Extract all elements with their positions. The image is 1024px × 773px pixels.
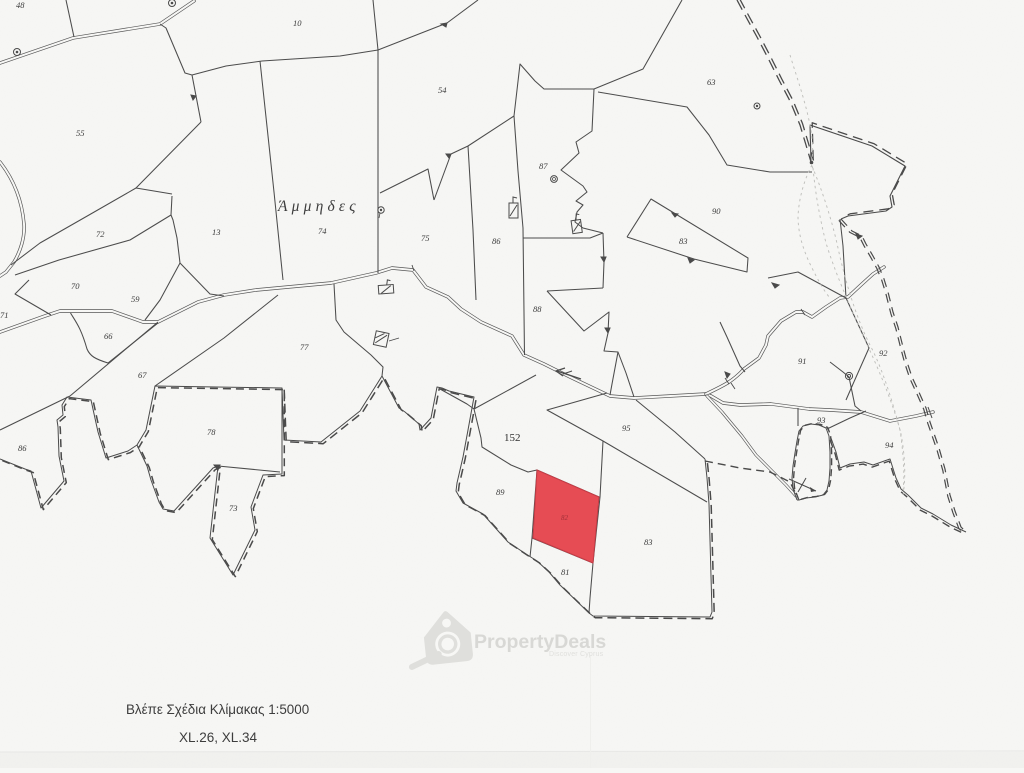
svg-text:83: 83 [644,537,653,547]
svg-text:89: 89 [496,487,505,497]
svg-text:94: 94 [885,440,894,450]
svg-text:67: 67 [138,370,147,380]
svg-text:152: 152 [504,432,521,444]
svg-text:66: 66 [104,331,113,341]
svg-text:XL.26, XL.34: XL.26, XL.34 [179,730,258,745]
svg-text:55: 55 [76,128,85,138]
svg-text:95: 95 [622,423,631,433]
svg-text:87: 87 [539,161,548,171]
svg-text:13: 13 [212,227,221,237]
svg-text:86: 86 [18,443,27,453]
svg-text:93: 93 [817,415,826,425]
svg-text:Βλέπε Σχέδια Κλίμακας 1:5000: Βλέπε Σχέδια Κλίμακας 1:5000 [126,702,309,717]
svg-text:Discover Cyprus: Discover Cyprus [549,651,604,658]
svg-text:90: 90 [712,206,721,216]
svg-text:82: 82 [561,514,569,522]
svg-text:77: 77 [300,342,309,352]
svg-text:83: 83 [679,236,688,246]
svg-text:63: 63 [707,77,716,87]
svg-text:71: 71 [0,310,9,320]
svg-text:Άμμηδες: Άμμηδες [277,198,360,215]
svg-text:54: 54 [438,85,447,95]
svg-text:73: 73 [229,503,238,513]
svg-text:59: 59 [131,294,140,304]
svg-text:10: 10 [293,18,302,28]
svg-text:88: 88 [533,304,542,314]
svg-text:92: 92 [879,348,888,358]
svg-text:75: 75 [421,233,430,243]
svg-text:48: 48 [16,0,25,10]
svg-text:PropertyDeals: PropertyDeals [474,631,606,653]
svg-text:86: 86 [492,236,501,246]
svg-text:74: 74 [318,226,327,236]
svg-text:70: 70 [71,281,80,291]
svg-text:78: 78 [207,427,216,437]
svg-text:91: 91 [798,356,807,366]
svg-text:72: 72 [96,229,105,239]
svg-text:81: 81 [561,567,570,577]
